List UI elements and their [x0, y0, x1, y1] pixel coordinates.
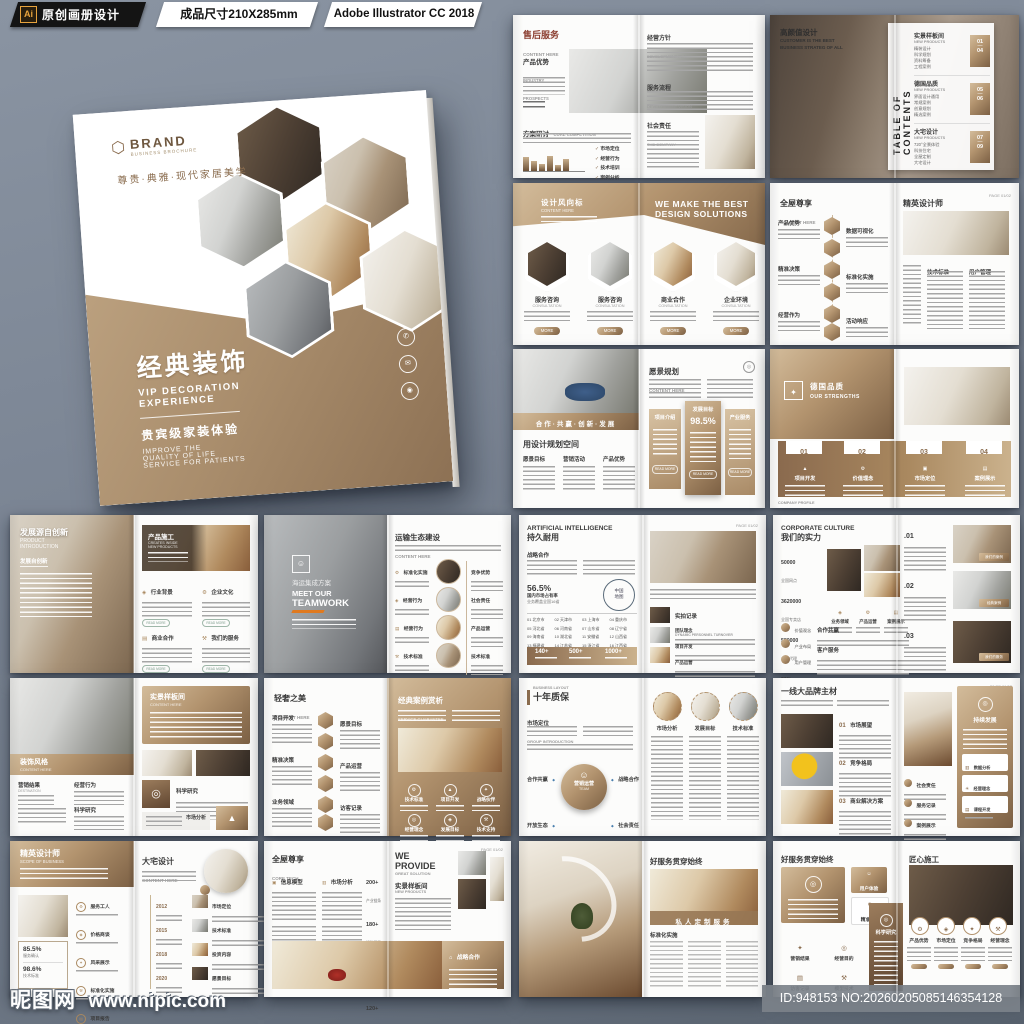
thumb-photo	[650, 627, 670, 643]
more-button: MORE	[534, 327, 560, 335]
side-card: ▤ 课程开发	[962, 796, 1008, 813]
circle-photo	[436, 615, 461, 640]
page-range-end: 04	[970, 48, 990, 54]
check-icon: ✓	[595, 147, 599, 152]
photo-meeting	[142, 750, 192, 776]
circle-photo	[436, 559, 461, 584]
target-icon: ◎	[743, 361, 755, 373]
list-number: .03	[904, 633, 914, 640]
page-background: Ai 原创画册设计 成品尺寸210X285mm Adobe Illustrato…	[0, 0, 1024, 1024]
vertical-panel: ◎ 科学研究	[869, 903, 903, 991]
info-card: 项目介绍 READ MORE	[649, 409, 681, 489]
page-title: 经典案例赏析	[398, 696, 443, 705]
text-lines	[340, 730, 380, 752]
cover-logo: ⬡ BRAND BUSINESS BROCHURE	[110, 132, 197, 158]
bullet-dot	[904, 819, 912, 827]
page-title: 精英设计师	[20, 848, 134, 859]
section-title: 经营方针	[647, 36, 671, 42]
check-list: ✓ 市场定位 ✓ 经营行为 ✓ 技术培训 ✓ 案例分析	[595, 145, 620, 181]
gear-icon: ⚙	[76, 902, 86, 912]
photo-caption: 我们的服务	[979, 653, 1009, 661]
text-lines	[903, 265, 921, 325]
overlay-cn: 海运集成方案	[292, 577, 356, 587]
spread-aftersale-service: 售后服务CONTENT HERE 产品优势INDUSTRYPROSPECTS 方…	[513, 15, 765, 178]
headline-sub: GREAT SOLUTION	[395, 871, 451, 876]
title-band: 装饰风格 CONTENT HERE	[10, 754, 134, 775]
photo-warm-room	[781, 790, 833, 824]
item-title: 企业文化	[211, 590, 233, 596]
photo-stair-chair	[904, 692, 952, 766]
cover-divider	[140, 411, 240, 419]
text-lines	[904, 547, 946, 573]
province-cell: 08 辽宁省	[610, 626, 638, 632]
column-header: 愿景目标	[523, 455, 559, 463]
pin-icon: ◈	[944, 927, 949, 933]
more-button: MORE	[723, 327, 749, 335]
diamond-icon: ◆	[552, 824, 555, 828]
info-card: 产业服务 READ MORE	[725, 409, 755, 495]
timeline-node	[318, 814, 333, 831]
text-lines	[523, 77, 565, 95]
photo-chinese-style	[827, 549, 861, 591]
section-title: 标准化实施	[650, 931, 678, 939]
gear-icon: ⚙	[202, 590, 207, 596]
text-lines	[843, 485, 883, 497]
step-number: 04	[980, 449, 988, 456]
circle-photo-kitchen	[204, 849, 248, 893]
spread-elite-designer: 精英设计师 SCOPE OF BUSINESS 85.5% 服务确认 98.6%…	[10, 841, 258, 997]
column-header: 信息模型	[281, 880, 303, 886]
info-card-highlight: 发展目标 98.5% READ MORE	[685, 401, 721, 495]
toc-page-badge: 05 — 06	[970, 83, 990, 115]
item-title: 技术标准	[471, 655, 490, 660]
text-lines	[272, 808, 312, 830]
card-subtitle: CONSULTATION	[647, 304, 699, 308]
circle-photo	[729, 692, 758, 721]
text-lines	[649, 379, 701, 399]
text-lines	[587, 311, 633, 324]
team-icon: ☺	[292, 555, 310, 573]
text-lines	[904, 834, 946, 840]
text-lines	[340, 772, 380, 794]
page-number: PAGE 01/02	[736, 523, 758, 528]
star-icon: ✦	[790, 388, 797, 397]
province-cell: 10 湖北省	[555, 634, 583, 640]
grid-label: 战略伙伴	[470, 797, 502, 803]
section-subtitle: NEW PRODUCTS	[395, 890, 451, 894]
stat-value: 85.5%	[23, 946, 63, 953]
grid-label: 技术支持	[470, 827, 502, 833]
target-icon: ◎	[151, 788, 161, 800]
step-label: 价值理念	[840, 475, 886, 482]
item-title: 我们的服务	[211, 636, 239, 642]
feature-label: 活动响应	[846, 317, 890, 325]
photo-colorful-living	[398, 728, 502, 772]
text-lines	[527, 726, 577, 738]
grid-label: 技术标准	[398, 797, 430, 803]
grid-label: 项目开发	[434, 797, 466, 803]
badge-icon: ✦	[784, 381, 803, 400]
text-lines	[340, 814, 380, 836]
read-more-button: READ MORE	[689, 470, 717, 479]
spread-private-custom: 好服务贯穿始终CONTENT HERE 私人定制服务 标准化实施	[519, 841, 766, 997]
corner-label: 开放生态	[527, 823, 548, 829]
image-id-text: ID:948153 NO:20260205085146354128	[780, 991, 1002, 1005]
timeline-node	[318, 733, 333, 750]
diamond-icon: ◆	[611, 778, 614, 782]
stat-value: 180+	[366, 922, 378, 928]
bubble-label: 营销运营	[561, 780, 607, 787]
page-title: 设计风向标	[541, 197, 597, 208]
stat-value: 3620000	[781, 599, 801, 605]
text-lines	[904, 647, 946, 673]
text-lines	[527, 560, 577, 576]
text-lines	[452, 710, 500, 722]
triangle-icon: ▲	[228, 813, 237, 823]
case-photo: 我们的服务	[953, 621, 1011, 663]
feature-label: 经营作为	[778, 311, 822, 319]
red-chair-accent	[328, 969, 346, 981]
text-lines	[523, 466, 555, 490]
side-card-label: 数据分析	[974, 765, 991, 770]
overlay-en: TEAMWORK	[292, 598, 356, 609]
toc-page-badge: 07 — 09	[970, 131, 990, 163]
photo-lounge	[864, 573, 900, 597]
thumb-photo	[458, 851, 486, 875]
text-lines	[527, 744, 633, 753]
globe-icon: ◉	[400, 381, 419, 400]
watermark: 昵图网 www.nipic.com	[10, 984, 226, 1014]
read-more-tag: READ MORE	[142, 619, 170, 627]
section-title: 市场展望	[850, 723, 872, 729]
text-lines	[74, 816, 124, 830]
section-title: 客户服务	[817, 648, 839, 654]
text-lines	[395, 898, 451, 930]
province-cell: 11 安徽省	[582, 634, 610, 640]
card-label: 产业服务	[725, 414, 755, 421]
item-title: 愿景目标	[212, 977, 231, 982]
header-badge1-label: 原创画册设计	[42, 6, 120, 23]
text-lines	[905, 485, 945, 497]
photo-card: 产品施工 CREATES INSIDE NEW PRODUCTS	[142, 525, 250, 571]
circle-photo	[653, 692, 682, 721]
timeline-node	[318, 754, 333, 771]
case-photo: 我们的案例	[953, 525, 1011, 563]
page-subtitle: CONTENT HERE	[395, 554, 431, 559]
page-title: 全屋尊享	[780, 199, 812, 208]
card-title: 企业环境	[710, 295, 762, 304]
pin-icon: ◈	[76, 930, 86, 940]
hex-card: 服务咨询 CONSULTATION MORE	[521, 239, 573, 335]
team-bubble: ☺ 营销运营 TEAM	[561, 764, 607, 810]
page-title: 全屋尊享	[272, 855, 304, 864]
text-lines	[688, 941, 721, 989]
text-lines	[20, 868, 108, 881]
ai-logo-icon: Ai	[20, 6, 37, 23]
more-button	[938, 964, 954, 969]
item-title: 经营行为	[404, 627, 423, 632]
overlay-title-en: CUSTOMER IS THE BEST BUSINESS STRATEG OF…	[780, 38, 852, 52]
tools-icon: ⚒	[995, 927, 1000, 933]
step-number: 03	[920, 449, 928, 456]
site-url: www.nipic.com	[88, 991, 226, 1012]
text-lines	[523, 133, 631, 143]
section-number: 01	[839, 723, 846, 729]
province-cell: 06 河南省	[555, 626, 583, 632]
check-icon: ✓	[595, 157, 599, 162]
side-card-label: 课程开发	[974, 807, 991, 812]
page-number: PAGE 01/02	[989, 193, 1011, 198]
text-lines	[651, 736, 683, 820]
grid-label: 发展目标	[434, 827, 466, 833]
section-number: 02	[839, 761, 846, 767]
section-title: 产品优势	[523, 59, 549, 66]
text-lines	[20, 573, 92, 617]
text-lines	[272, 892, 316, 920]
step-number-tab: 03	[906, 441, 942, 454]
card-subtitle: CONSULTATION	[584, 304, 636, 308]
card-subtitle: CONSULTATION	[521, 304, 573, 308]
step-label: 项目开发	[782, 475, 828, 482]
plant-accent	[571, 903, 593, 929]
stat-box: 85.5% 服务确认 98.6% 技术标准	[18, 941, 68, 989]
page-title: 发展源自创新	[20, 527, 92, 538]
card-label: 发展目标	[685, 406, 721, 413]
photo-kitchen-band	[272, 941, 442, 989]
bullet-label: 价格商谈	[90, 933, 109, 938]
more-button	[911, 964, 927, 969]
page-range-end: 09	[970, 144, 990, 150]
text-lines	[395, 609, 429, 617]
list-number: .01	[904, 533, 914, 540]
section-title: 实景样板间	[395, 880, 451, 890]
more-button: MORE	[660, 327, 686, 335]
overlay-band: 私人定制服务	[650, 911, 758, 925]
header-badge3-label: Adobe Illustrator CC 2018	[331, 2, 477, 27]
text-lines	[142, 871, 196, 883]
text-lines	[837, 700, 889, 708]
star-icon: ✦	[480, 784, 493, 797]
text-lines	[729, 429, 751, 459]
text-lines	[927, 271, 963, 329]
section-number: 03	[839, 799, 846, 805]
page-title: 装饰风格	[20, 757, 134, 767]
counter: 500+	[569, 649, 583, 655]
timeline-year: 2020	[156, 976, 167, 982]
text-lines	[904, 597, 946, 623]
page-title-cn: 持久耐用	[527, 532, 612, 543]
spread-brand-materials: 一线大品牌主材 PAGE 01/02 01 市场展望 02 竞争格局 03 商业…	[773, 678, 1020, 836]
circle-photo	[691, 692, 720, 721]
text-lines	[322, 892, 362, 920]
photo-interior	[705, 115, 755, 169]
feature-label: 数据可视化	[846, 227, 890, 235]
thumb-photo	[192, 943, 208, 956]
column-header: 经营行为	[74, 781, 126, 789]
hexagon-logo-icon: ⬡	[110, 137, 125, 158]
text-lines	[74, 791, 124, 805]
feature-label: 产品运营	[340, 762, 382, 770]
chart-icon: ▥	[965, 765, 969, 770]
page-title: 十年质保	[533, 690, 569, 703]
spread-light-luxury: 轻奢之美CONTENT HERE 项目开发 精准决策 业务领域 愿景目标 产品运…	[264, 678, 511, 836]
province-cell: 02 天津市	[555, 617, 583, 623]
doc-icon: ▤	[894, 610, 899, 616]
doc-icon: ▤	[983, 466, 988, 472]
chip: ☺用户体验	[851, 867, 887, 893]
china-map-circle: 中国 地图	[603, 579, 635, 611]
province-grid: 01 北京市02 天津市03 上海市04 重庆市 05 河北省06 河南省07 …	[527, 613, 637, 649]
bullet-label: 社会责任	[916, 784, 935, 789]
card-subtitle: CONTENT HERE	[150, 702, 250, 707]
step-number-tab: 02	[844, 441, 880, 454]
text-lines	[778, 229, 820, 241]
bullet-label: 案例展示	[916, 824, 935, 829]
text-lines	[690, 432, 716, 464]
grid-label: 经营理念	[398, 827, 430, 833]
column-header: 营销活动	[563, 455, 599, 463]
text-lines	[150, 712, 242, 738]
case-photo: 经典案例	[953, 571, 1011, 609]
province-cell: 03 上海市	[582, 617, 610, 623]
timeline-year: 2018	[156, 952, 167, 958]
image-id-badge: ID:948153 NO:20260205085146354128	[762, 985, 1020, 1012]
step-circle: ⚙	[911, 917, 929, 935]
sub-label: 发展自创新	[20, 557, 48, 567]
bar-chart	[523, 147, 585, 172]
target-icon: ◎	[978, 697, 993, 712]
chart-icon: ▥	[322, 880, 326, 885]
item-title: 标准化实施	[404, 571, 428, 576]
bullet-label: 服务记录	[916, 804, 935, 809]
read-more-tag: READ MORE	[142, 665, 170, 673]
card-stat: 98.5%	[685, 416, 721, 426]
text-lines	[965, 817, 993, 821]
text-lines	[395, 637, 429, 645]
text-lines	[524, 311, 570, 324]
icon-item-label: 营销结果	[781, 955, 819, 962]
stat-value: 200+	[366, 880, 378, 886]
cover-title-block: 经典装饰 VIP DECORATION EXPERIENCE 贵宾级家装体验 I…	[135, 341, 255, 470]
photo-staircase	[903, 211, 1009, 255]
feature-label: 精准决策	[272, 756, 314, 764]
check-item: 市场定位	[600, 147, 619, 152]
text-lines	[988, 947, 1012, 961]
slogan-banner: 合作·共赢·创新·发展	[513, 413, 639, 430]
timeline-rail	[150, 895, 151, 989]
text-lines	[647, 131, 699, 169]
triangle-icon: ▲	[803, 466, 808, 472]
bullet-dot	[904, 799, 912, 807]
timeline-node	[318, 712, 333, 729]
spread-vision-planning: 合作·共赢·创新·发展 用设计规划空间 愿景目标 营销活动 产品优势 愿景规划C…	[513, 349, 765, 508]
toc-panel: TABLE OF CONTENTS 实景样板间 NEW PRODUCTS 精装设…	[888, 23, 994, 170]
spread-core-tech: 全屋尊享CORE TECH ▣ 信息模型 ▥ 市场分析 200+产业链条 180…	[264, 841, 511, 997]
text-lines	[647, 43, 753, 73]
photo-desk	[781, 714, 833, 748]
spread-table-of-contents: 高颜值设计 CUSTOMER IS THE BEST BUSINESS STRA…	[770, 15, 1019, 178]
text-lines	[272, 766, 312, 788]
text-lines	[272, 724, 312, 746]
circle-label: 用户管理	[794, 660, 811, 665]
value-dot	[781, 655, 790, 664]
section-title: 用设计规划空间	[523, 439, 579, 450]
text-lines	[142, 602, 192, 617]
page-title: 运输生态建设	[395, 533, 440, 542]
text-lines	[727, 736, 759, 820]
spread-design-trend: 设计风向标 CONTENT HERE WE MAKE THE BEST DESI…	[513, 183, 765, 345]
photo-caption: 经典案例	[979, 599, 1009, 607]
headline-en: WE MAKE THE BEST	[655, 199, 748, 209]
text-lines	[907, 947, 931, 961]
text-lines	[846, 283, 888, 295]
cover-sub-cn: 贵宾级家装体验	[141, 419, 254, 444]
text-lines	[583, 560, 635, 576]
text-lines	[583, 726, 633, 738]
text-lines	[689, 736, 721, 820]
text-lines	[650, 941, 683, 989]
step-label: 市场定位	[902, 475, 948, 482]
doc-icon: ▤	[76, 1014, 86, 1024]
page-range-end: 06	[970, 96, 990, 102]
photo-grand-staircase	[519, 841, 642, 997]
tools-icon: ⚒	[202, 636, 207, 642]
photo-caption: 我们的案例	[979, 553, 1009, 561]
text-lines	[18, 808, 66, 824]
column-header: 市场分析	[331, 880, 353, 886]
text-lines	[961, 947, 985, 961]
bulb-icon: ☀	[965, 786, 969, 791]
item-title: 竞争优势	[471, 571, 490, 576]
stat-value: 120+	[366, 1006, 378, 1012]
stat-label: 技术标准	[23, 973, 63, 979]
header-bar: Ai 原创画册设计 成品尺寸210X285mm Adobe Illustrato…	[0, 0, 520, 30]
text-lines	[535, 657, 557, 662]
spread-innovation: 发展源自创新 PRODUCT INTRODUCTION 发展自创新 产品施工 C…	[10, 515, 258, 673]
pin-icon: ◈	[395, 598, 398, 603]
stat-label: 产业链条	[366, 899, 381, 903]
thumb-photo	[192, 919, 208, 932]
card-title: 实景样板间	[150, 692, 250, 702]
text-lines	[148, 552, 188, 562]
site-logo: 昵图网	[10, 989, 76, 1012]
step-circle: ◈	[937, 917, 955, 935]
bullet-label: 风采展示	[90, 961, 109, 966]
text-lines	[18, 795, 54, 807]
more-button	[992, 964, 1008, 969]
page-title-en: CORPORATE CULTURE	[781, 525, 854, 532]
more-button: MORE	[597, 327, 623, 335]
text-lines	[785, 485, 825, 497]
doc-icon: ▤	[395, 626, 399, 631]
thumb-photo	[650, 607, 670, 623]
tools-icon: ⚒	[395, 654, 399, 659]
gear-icon: ⚙	[917, 927, 922, 933]
target-card: ◎	[142, 780, 170, 808]
circle-label: 价值观念	[794, 628, 811, 633]
counter: 140+	[535, 649, 549, 655]
province-cell: 09 海南省	[527, 634, 555, 640]
check-item: 技术培训	[600, 166, 619, 171]
photo-dining-room	[650, 531, 756, 583]
user-icon: ☺	[851, 871, 887, 877]
item-title: 技术标准	[404, 655, 423, 660]
target-icon: ◎	[880, 914, 893, 927]
counter-band: 140+ 500+ 1000+	[527, 647, 637, 665]
thumb-photo	[192, 895, 208, 908]
chip-label: 用户体验	[860, 886, 878, 891]
feature-label: 项目开发	[272, 714, 314, 722]
